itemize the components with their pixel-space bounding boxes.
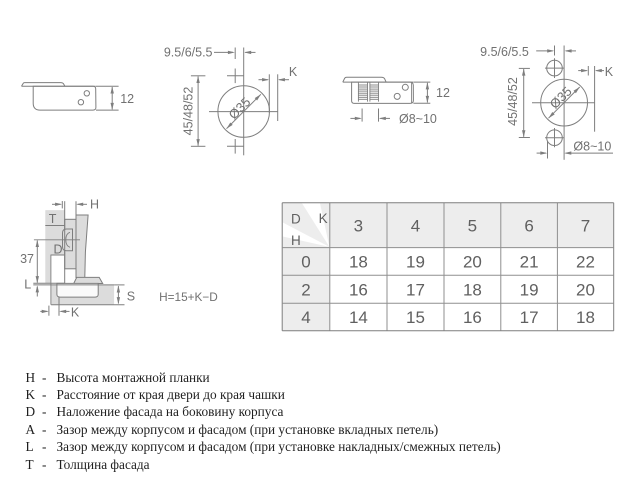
svg-text:D: D xyxy=(291,211,301,226)
svg-text:12: 12 xyxy=(120,92,134,106)
svg-text:4: 4 xyxy=(411,216,420,235)
svg-text:Ø8~10: Ø8~10 xyxy=(399,112,437,126)
svg-text:14: 14 xyxy=(349,308,368,327)
svg-text:45/48/52: 45/48/52 xyxy=(182,87,196,136)
svg-text:T: T xyxy=(49,212,57,226)
svg-text:Ø35: Ø35 xyxy=(225,94,253,122)
svg-text:L: L xyxy=(24,278,31,292)
svg-text:K: K xyxy=(71,305,80,319)
svg-text:16: 16 xyxy=(463,308,482,327)
svg-text:18: 18 xyxy=(349,253,368,272)
svg-text:6: 6 xyxy=(524,216,533,235)
svg-text:15: 15 xyxy=(406,308,425,327)
svg-text:2: 2 xyxy=(301,280,310,299)
svg-text:H=15+K−D: H=15+K−D xyxy=(159,290,218,304)
svg-text:16: 16 xyxy=(349,280,368,299)
svg-text:21: 21 xyxy=(520,253,539,272)
svg-text:18: 18 xyxy=(463,280,482,299)
svg-text:22: 22 xyxy=(576,253,595,272)
svg-text:19: 19 xyxy=(406,253,425,272)
svg-text:3: 3 xyxy=(354,216,363,235)
svg-text:19: 19 xyxy=(520,280,539,299)
svg-text:20: 20 xyxy=(463,253,482,272)
svg-text:45/48/52: 45/48/52 xyxy=(506,77,520,126)
svg-text:H: H xyxy=(90,198,99,212)
svg-text:17: 17 xyxy=(406,280,425,299)
svg-text:37: 37 xyxy=(20,252,34,266)
svg-text:20: 20 xyxy=(576,280,595,299)
svg-text:9.5/6/5.5: 9.5/6/5.5 xyxy=(480,45,529,59)
svg-text:D: D xyxy=(53,242,62,256)
svg-text:K: K xyxy=(605,65,614,79)
svg-text:18: 18 xyxy=(576,308,595,327)
svg-text:9.5/6/5.5: 9.5/6/5.5 xyxy=(164,45,213,59)
svg-text:K: K xyxy=(289,65,298,79)
svg-text:5: 5 xyxy=(468,216,477,235)
svg-text:0: 0 xyxy=(301,253,310,272)
svg-text:Ø8~10: Ø8~10 xyxy=(573,140,611,154)
svg-text:S: S xyxy=(127,289,135,303)
svg-text:Ø35: Ø35 xyxy=(547,84,575,112)
svg-text:12: 12 xyxy=(436,86,450,100)
svg-text:7: 7 xyxy=(581,216,590,235)
svg-text:H: H xyxy=(291,233,301,248)
svg-text:K: K xyxy=(319,211,328,226)
svg-text:4: 4 xyxy=(301,308,310,327)
svg-text:17: 17 xyxy=(520,308,539,327)
